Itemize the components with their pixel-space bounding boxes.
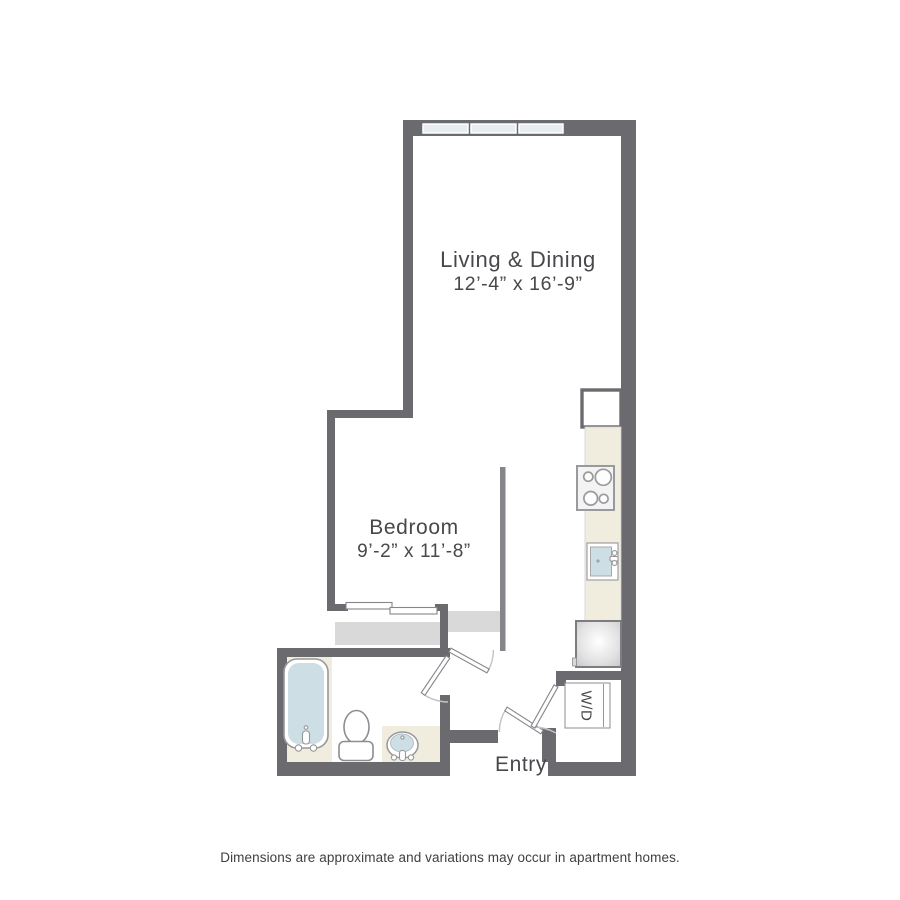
wall-bottom-right [548, 762, 636, 776]
closet-shelf-band [335, 622, 440, 645]
sliding-door-panel-1 [346, 603, 392, 610]
wall-hall-bottom [450, 730, 498, 743]
wall-bathroom-top [277, 648, 450, 657]
refrigerator-body [576, 621, 621, 667]
toilet-tank [339, 742, 373, 761]
toilet-bowl [344, 711, 369, 744]
closet-shelf-band [448, 611, 500, 632]
sink-basin [591, 547, 612, 576]
refrigerator-handle [573, 658, 577, 666]
tub-faucet-knob-right [310, 745, 316, 751]
vanity-faucet-dot [401, 736, 404, 739]
wall-right [621, 120, 636, 776]
faucet-knob-top [612, 551, 617, 556]
vanity-faucet-knob-right [408, 755, 413, 760]
tub-faucet-spout [303, 731, 310, 744]
bathtub [284, 659, 328, 751]
living-dining-label: Living & Dining [440, 247, 596, 272]
faucet-knob-bottom [612, 561, 617, 566]
wall-kitchen-divider [500, 467, 506, 651]
laundry-label: W/D [578, 691, 595, 722]
wall-bathroom-bottom [277, 762, 450, 776]
wall-bedroom-bottom-left [327, 604, 348, 611]
floorplan-svg: W/D [0, 0, 900, 900]
burner-large-bl [584, 492, 598, 506]
burner-small-tl [584, 472, 593, 481]
vanity-faucet-knob-left [391, 755, 396, 760]
bedroom-dimensions: 9’-2” x 11’-8” [357, 541, 471, 562]
tub-faucet-knob-left [295, 745, 301, 751]
sliding-door-panel-2 [390, 608, 437, 615]
wall-bedroom-left [327, 410, 335, 611]
upper-cabinet [582, 390, 621, 427]
vanity-faucet-spout [400, 751, 406, 761]
wall-living-left [403, 120, 413, 418]
stove [577, 466, 614, 510]
window-pane-1 [423, 124, 468, 133]
burner-small-br [599, 494, 608, 503]
bedroom-label: Bedroom [369, 516, 458, 539]
laundry-closet: W/D [565, 683, 610, 728]
disclaimer-text: Dimensions are approximate and variation… [220, 850, 680, 865]
bedroom-closet [335, 603, 440, 646]
wall-step [327, 410, 413, 418]
burner-large-tr [595, 469, 611, 485]
wall-closet2-left [440, 604, 448, 655]
window-pane-3 [519, 124, 563, 133]
sink-drain [596, 559, 599, 562]
hall-closet [448, 611, 500, 632]
windows [423, 124, 563, 133]
bathroom-vanity [382, 726, 440, 762]
tub-faucet-dot [304, 726, 308, 730]
kitchen-counter [585, 427, 621, 621]
floorplan-page: W/D [0, 0, 900, 900]
window-pane-2 [471, 124, 516, 133]
entry-label: Entry [495, 753, 547, 776]
kitchen-sink [587, 543, 618, 580]
refrigerator [573, 621, 622, 667]
wall-bathroom-right-lower [440, 695, 450, 762]
living-dining-dimensions: 12’-4” x 16’-9” [453, 273, 582, 295]
